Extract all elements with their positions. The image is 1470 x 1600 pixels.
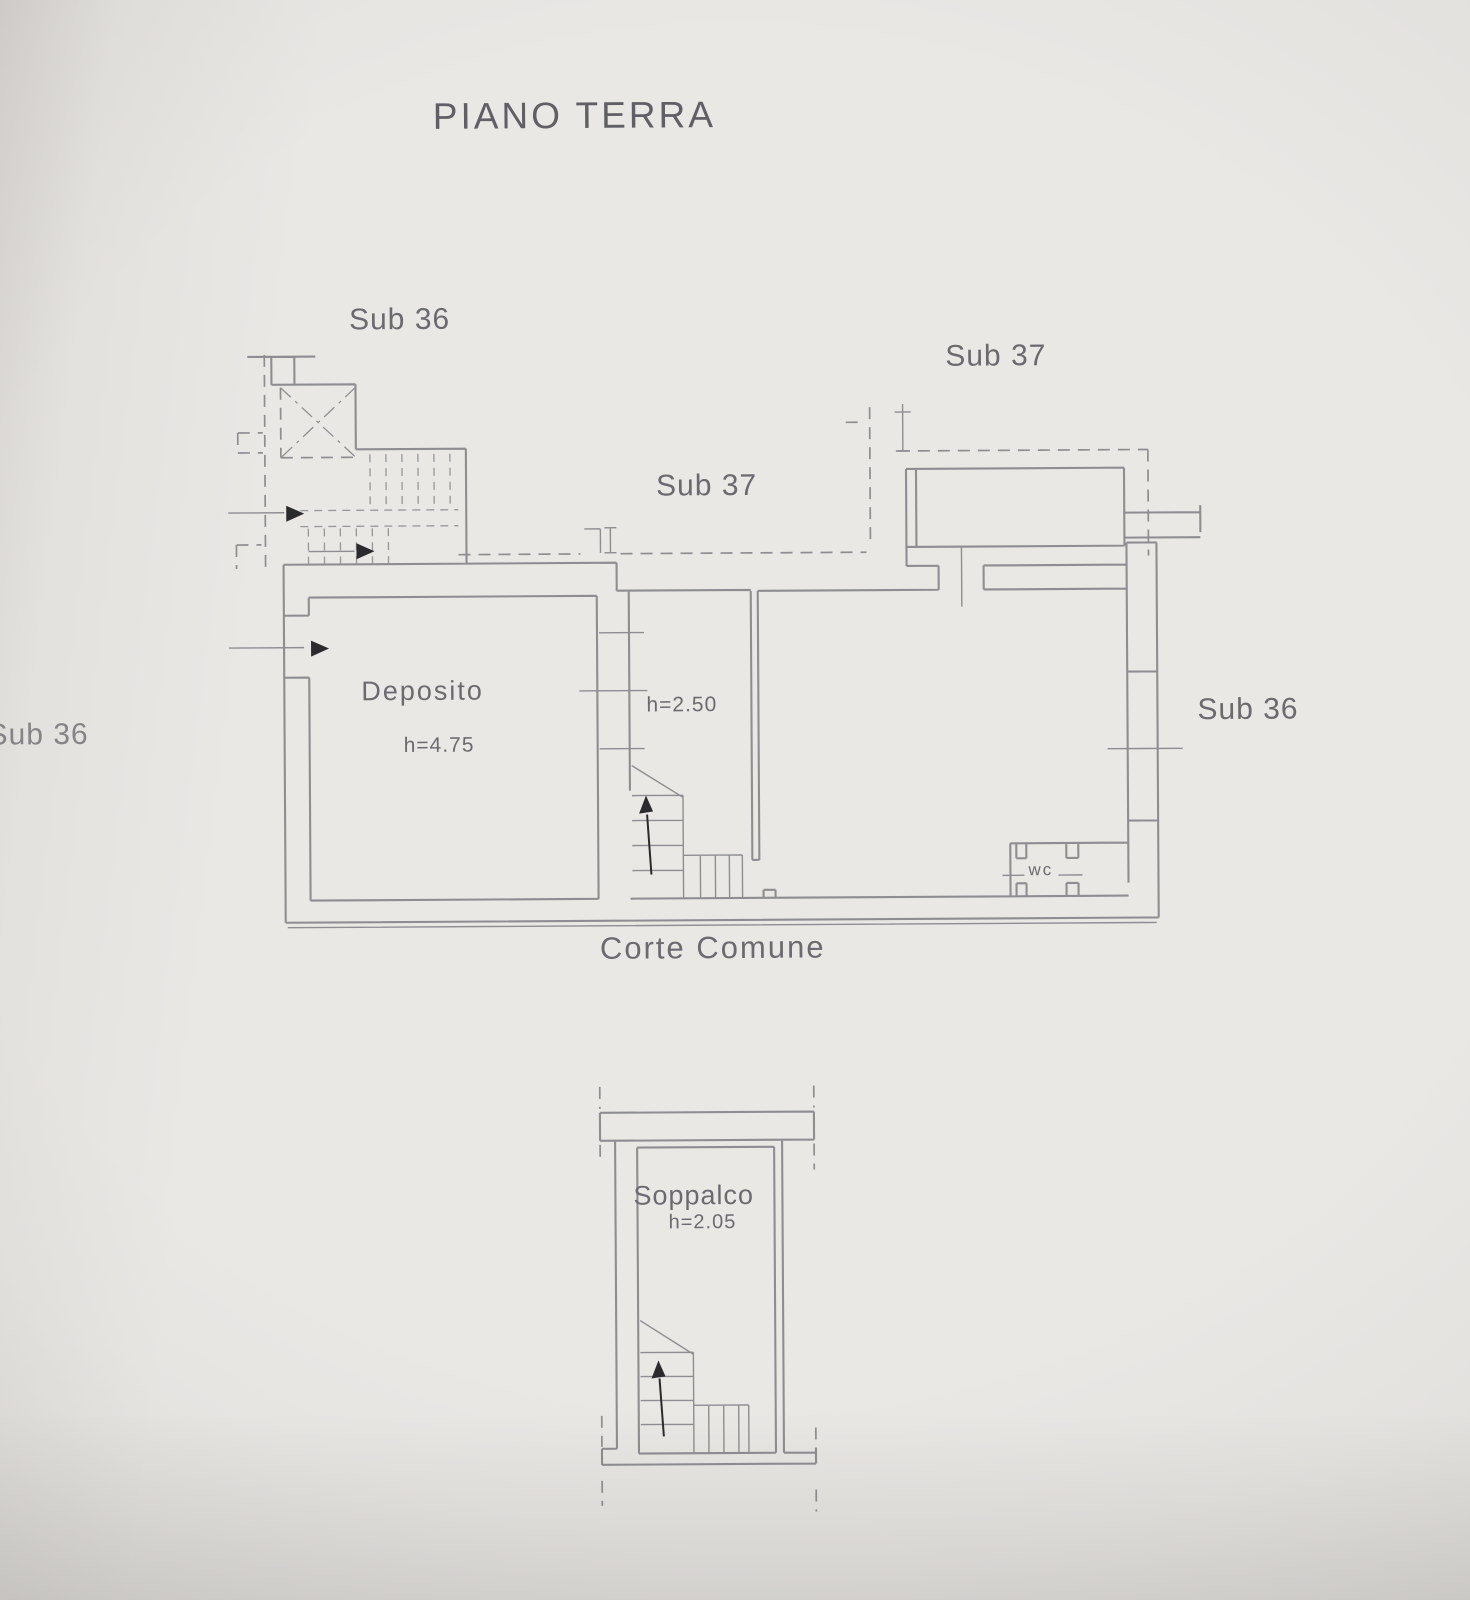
floor-plan-linework [0,0,1470,1600]
label-central-room-height: h=2.50 [646,694,717,715]
label-deposito: Deposito [361,678,484,706]
label-soppalco: Soppalco [633,1182,754,1210]
ground-floor-plan [227,349,1202,928]
entry-arrow-left-upper [286,506,304,522]
label-sub36-left-edge: Sub 36 [0,720,89,751]
stair-direction-arrow [639,796,653,814]
scanned-floor-plan-photo: PIANO TERRA Sub 36 Sub 37 Sub 37 Sub 36 … [0,0,1470,1600]
label-soppalco-height: h=2.05 [669,1212,737,1232]
drawing-sheet: PIANO TERRA Sub 36 Sub 37 Sub 37 Sub 36 … [0,0,1470,1600]
page-title: PIANO TERRA [433,96,716,135]
stair-direction-line [647,815,651,875]
label-sub37-upper: Sub 37 [945,341,1046,372]
mezzanine-walls [600,1112,816,1465]
mezzanine-stair-direction-arrow [651,1360,665,1378]
mezzanine-plan [600,1086,817,1513]
mezzanine-staircase [640,1320,749,1454]
label-sub36-stairwell: Sub 36 [349,305,450,336]
label-sub36-right: Sub 36 [1197,695,1298,726]
label-deposito-height: h=4.75 [404,735,475,756]
label-courtyard: Corte Comune [600,931,826,963]
label-wc: wc [1028,861,1053,878]
shaft-cross-diagonals [280,387,355,457]
mezzanine-stair-direction-line [660,1378,664,1436]
ground-floor-walls [247,351,1202,923]
deposito-door-arrow [311,640,329,656]
stairwell-dashed-treads [300,454,459,571]
label-sub37-corridor: Sub 37 [656,471,757,502]
